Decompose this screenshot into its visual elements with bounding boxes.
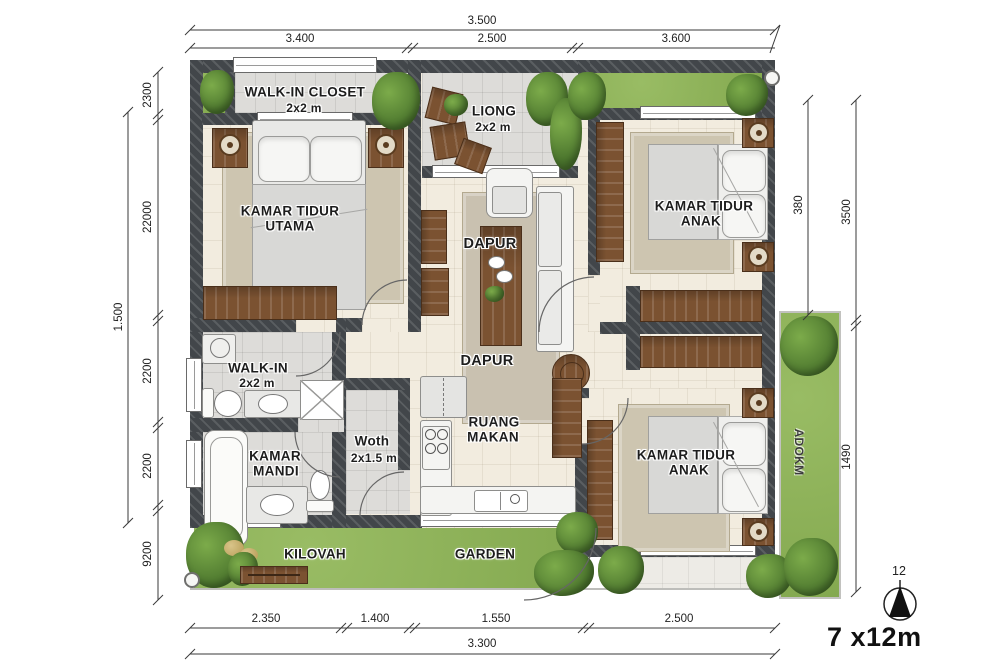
dim-right-outer: 3500 xyxy=(841,199,853,225)
sink xyxy=(260,494,294,516)
label-side-garden: ADOKM xyxy=(792,429,806,476)
toilet-tank xyxy=(306,500,334,512)
lamp xyxy=(219,134,241,156)
dim-right-inner: 380 xyxy=(793,195,805,214)
label-kilovah: KILOVAH xyxy=(284,547,346,562)
label-kids-bedroom-bottom: KAMAR TIDUR xyxy=(637,448,736,463)
floor-plan: 3.500 3.400 2.500 3.600 2.350 1.400 1.55… xyxy=(0,0,1000,666)
wardrobe-master xyxy=(203,286,337,320)
bench-slat xyxy=(248,574,300,576)
wall xyxy=(332,430,346,528)
sofa-cushion xyxy=(538,270,562,345)
label-walk-in: WALK-IN xyxy=(228,361,288,376)
label-liong-size: 2x2 m xyxy=(475,120,511,134)
label-woth-size: 2x1.5 m xyxy=(351,451,397,465)
burner xyxy=(437,443,448,454)
dim-bottom-seg: 1.400 xyxy=(361,613,390,625)
label-hall: DAPUR xyxy=(460,353,513,369)
column-marker xyxy=(764,70,780,86)
kitchen-sink xyxy=(474,490,528,512)
wardrobe xyxy=(640,290,762,322)
label-garden: GARDEN xyxy=(455,547,515,562)
door-opening-woth xyxy=(398,470,410,514)
wardrobe xyxy=(596,122,624,262)
wall xyxy=(600,322,762,334)
cabinet xyxy=(421,210,447,264)
dim-left-overall: 1.500 xyxy=(113,303,125,332)
armchair-seat xyxy=(492,186,527,214)
cabinet xyxy=(421,268,449,316)
dim-bottom-seg: 1.550 xyxy=(482,613,511,625)
dim-bottom-seg: 2.350 xyxy=(252,613,281,625)
scale-label: 7 x12m xyxy=(827,622,922,653)
dim-left-seg: 2200 xyxy=(142,453,154,479)
label-kids-bedroom-bottom-2: ANAK xyxy=(669,463,709,478)
wall xyxy=(346,378,410,390)
dim-top-seg: 2.500 xyxy=(478,33,507,45)
label-woth: Woth xyxy=(355,434,390,449)
garden-edge-line xyxy=(190,588,775,590)
lamp xyxy=(748,122,769,143)
label-walk-in-closet-size: 2x2 m xyxy=(286,101,322,115)
window xyxy=(233,57,377,73)
door-opening-master xyxy=(362,318,408,332)
wall xyxy=(626,286,640,370)
burner xyxy=(425,429,436,440)
window xyxy=(186,358,202,412)
window xyxy=(186,440,202,488)
pillow xyxy=(258,136,310,182)
label-bathroom: KAMAR xyxy=(249,449,301,464)
lamp xyxy=(375,134,397,156)
label-walk-in-closet: WALK-IN CLOSET xyxy=(245,85,365,100)
lamp xyxy=(748,392,769,413)
sofa-cushion xyxy=(538,192,562,267)
burner xyxy=(425,443,436,454)
sink-divider xyxy=(500,492,501,510)
label-kids-bedroom-top-2: ANAK xyxy=(681,214,721,229)
north-arrow xyxy=(884,580,916,620)
door-opening-walk-in xyxy=(296,318,336,332)
fridge-line xyxy=(443,378,445,416)
door-opening-bedroom-top xyxy=(588,275,600,332)
cup xyxy=(488,256,505,269)
dim-top-seg: 3.600 xyxy=(662,33,691,45)
toilet-tank xyxy=(202,388,214,418)
label-living: DAPUR xyxy=(463,236,516,252)
washer-drum xyxy=(210,338,230,358)
pantry-cabinet xyxy=(552,378,582,458)
cup xyxy=(496,270,513,283)
dim-top-seg: 3.400 xyxy=(286,33,315,45)
wardrobe xyxy=(640,336,762,368)
dim-bottom-seg: 2.500 xyxy=(665,613,694,625)
pillow xyxy=(722,150,766,192)
dim-left-seg: 22000 xyxy=(142,201,154,233)
label-master-bedroom: KAMAR TIDUR xyxy=(241,204,340,219)
dim-left-seg: 9200 xyxy=(142,541,154,567)
label-bathroom-2: MANDI xyxy=(253,464,299,479)
north-label: 12 xyxy=(892,564,906,578)
dim-left-seg: 2200 xyxy=(142,358,154,384)
dim-right-outer: 1490 xyxy=(841,444,853,470)
faucet xyxy=(510,494,520,504)
pillow xyxy=(722,468,766,512)
dim-top-overall: 3.500 xyxy=(468,15,497,27)
door-opening-bathroom xyxy=(298,418,344,432)
burner xyxy=(437,429,448,440)
toilet xyxy=(214,390,242,417)
lamp xyxy=(748,521,769,542)
label-liong: LIONG xyxy=(472,104,516,119)
label-kids-bedroom-top: KAMAR TIDUR xyxy=(655,199,754,214)
column-marker xyxy=(184,572,200,588)
label-dining: RUANG xyxy=(469,415,520,430)
dim-left-seg: 2300 xyxy=(142,82,154,108)
pillow xyxy=(310,136,362,182)
toilet xyxy=(310,470,330,500)
lamp xyxy=(748,246,769,267)
label-walk-in-size: 2x2 m xyxy=(239,376,275,390)
label-master-bedroom-2: UTAMA xyxy=(265,219,314,234)
sink xyxy=(258,394,288,414)
label-dining-2: MAKAN xyxy=(467,430,519,445)
dim-bottom-overall: 3.300 xyxy=(468,638,497,650)
shower-x xyxy=(300,380,344,420)
